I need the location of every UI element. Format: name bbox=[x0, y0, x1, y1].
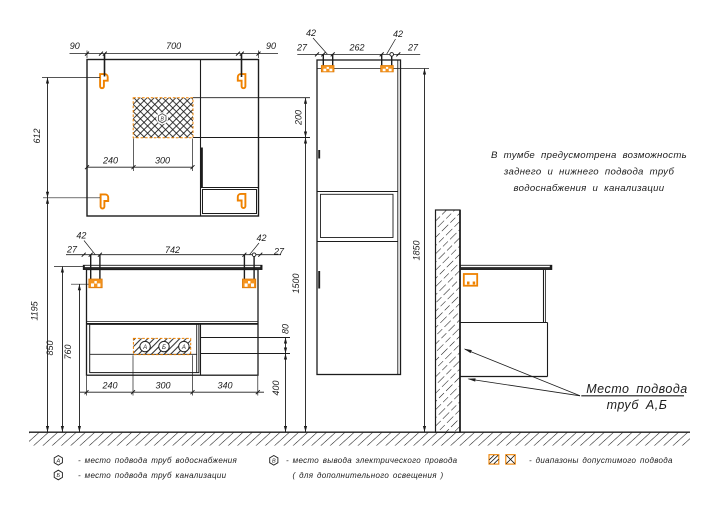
svg-text:90: 90 bbox=[70, 41, 80, 51]
svg-text:В: В bbox=[272, 459, 276, 465]
svg-text:27: 27 bbox=[407, 43, 419, 53]
svg-text:труб А,Б: труб А,Б bbox=[607, 398, 668, 412]
svg-text:1500: 1500 bbox=[291, 273, 301, 293]
svg-text:200: 200 bbox=[294, 110, 304, 126]
svg-text:Б: Б bbox=[162, 345, 166, 351]
svg-text:42: 42 bbox=[256, 233, 266, 243]
svg-text:42: 42 bbox=[76, 231, 86, 241]
svg-text:- место подвода труб канализац: - место подвода труб канализации bbox=[78, 471, 227, 480]
svg-text:90: 90 bbox=[266, 41, 276, 51]
svg-text:1195: 1195 bbox=[30, 300, 40, 320]
svg-text:водоснабжения и канализации: водоснабжения и канализации bbox=[514, 183, 665, 194]
svg-text:240: 240 bbox=[101, 381, 117, 391]
svg-text:А: А bbox=[181, 345, 186, 351]
svg-text:( для дополнительного освещени: ( для дополнительного освещения ) bbox=[292, 471, 443, 480]
svg-text:742: 742 bbox=[165, 245, 180, 255]
svg-text:700: 700 bbox=[166, 41, 181, 51]
svg-text:1850: 1850 bbox=[412, 240, 422, 260]
svg-text:заднего и нижнего подвода труб: заднего и нижнего подвода труб bbox=[503, 167, 675, 178]
svg-text:Б: Б bbox=[57, 473, 61, 479]
svg-text:850: 850 bbox=[45, 340, 55, 355]
svg-text:400: 400 bbox=[271, 380, 281, 395]
svg-text:340: 340 bbox=[217, 381, 232, 391]
svg-text:- место вывода электрического: - место вывода электрического провода bbox=[286, 456, 458, 465]
svg-text:Место подвода: Место подвода bbox=[586, 382, 687, 396]
svg-text:27: 27 bbox=[66, 245, 78, 255]
svg-text:- диапазоны допустимого подвод: - диапазоны допустимого подвода bbox=[529, 456, 673, 465]
svg-text:27: 27 bbox=[273, 247, 285, 257]
svg-text:240: 240 bbox=[102, 156, 118, 166]
svg-text:300: 300 bbox=[155, 156, 170, 166]
svg-text:300: 300 bbox=[155, 381, 170, 391]
svg-text:612: 612 bbox=[32, 128, 42, 143]
svg-text:262: 262 bbox=[348, 43, 364, 53]
svg-text:А: А bbox=[142, 345, 147, 351]
svg-text:42: 42 bbox=[306, 28, 316, 38]
svg-text:А: А bbox=[55, 459, 60, 465]
svg-text:760: 760 bbox=[63, 344, 73, 359]
svg-text:В тумбе предусмотрена возможно: В тумбе предусмотрена возможность bbox=[491, 150, 687, 161]
svg-text:27: 27 bbox=[296, 43, 308, 53]
svg-text:80: 80 bbox=[281, 324, 291, 334]
svg-text:42: 42 bbox=[393, 29, 403, 39]
svg-text:- место подвода труб водоснабж: - место подвода труб водоснабжения bbox=[78, 456, 238, 465]
